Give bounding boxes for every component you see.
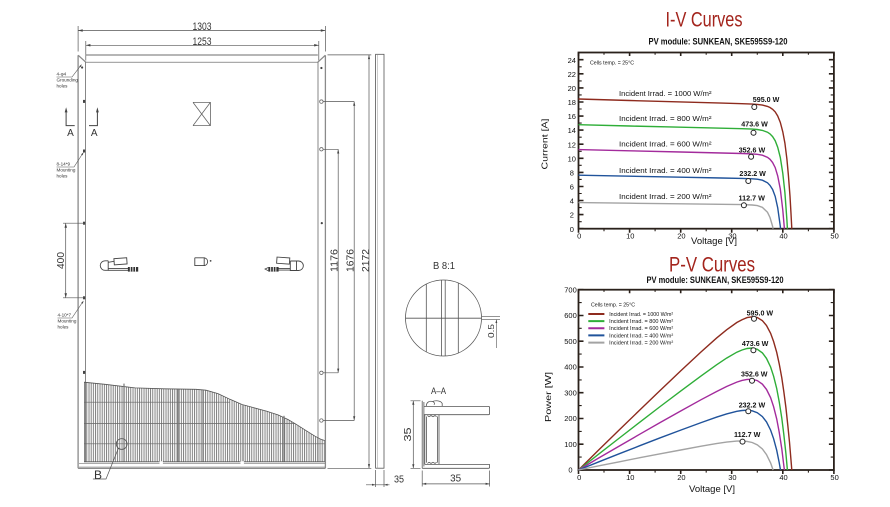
- svg-text:2172: 2172: [361, 249, 372, 272]
- svg-text:0: 0: [570, 225, 574, 234]
- svg-text:22: 22: [568, 70, 576, 79]
- svg-text:50: 50: [830, 232, 838, 241]
- svg-text:Incident Irrad. = 200 W/m²: Incident Irrad. = 200 W/m²: [609, 341, 673, 347]
- svg-text:40: 40: [779, 473, 787, 482]
- svg-text:1303: 1303: [193, 21, 212, 33]
- svg-text:40: 40: [779, 232, 787, 241]
- svg-text:10: 10: [626, 232, 634, 241]
- svg-text:8-14*9: 8-14*9: [57, 162, 71, 167]
- svg-text:30: 30: [728, 473, 736, 482]
- svg-text:500: 500: [564, 337, 577, 346]
- svg-text:Voltage [V]: Voltage [V]: [689, 484, 735, 495]
- svg-text:6: 6: [570, 183, 574, 192]
- svg-text:Cells temp. = 25°C: Cells temp. = 25°C: [590, 61, 634, 67]
- svg-text:Mounting: Mounting: [57, 168, 76, 173]
- svg-text:35: 35: [403, 427, 414, 442]
- svg-text:20: 20: [568, 84, 576, 93]
- svg-text:Incident Irrad. = 400 W/m²: Incident Irrad. = 400 W/m²: [609, 333, 673, 339]
- svg-text:112.7 W: 112.7 W: [739, 193, 766, 202]
- svg-text:400: 400: [564, 363, 577, 372]
- svg-text:232.2 W: 232.2 W: [739, 169, 766, 178]
- svg-text:0: 0: [568, 466, 572, 475]
- svg-text:B 8:1: B 8:1: [433, 261, 455, 272]
- svg-text:4: 4: [570, 197, 574, 206]
- svg-text:Incident Irrad. = 600 W/m²: Incident Irrad. = 600 W/m²: [609, 326, 673, 332]
- svg-text:400: 400: [56, 252, 67, 269]
- svg-text:24: 24: [568, 56, 576, 65]
- svg-text:A: A: [67, 128, 74, 139]
- svg-text:Incident Irrad. = 400 W/m²: Incident Irrad. = 400 W/m²: [619, 166, 712, 175]
- svg-text:Incident Irrad. = 1000 W/m²: Incident Irrad. = 1000 W/m²: [619, 89, 712, 98]
- svg-text:50: 50: [830, 473, 838, 482]
- svg-text:A–A: A–A: [431, 386, 447, 397]
- svg-text:Incident Irrad. = 200 W/m²: Incident Irrad. = 200 W/m²: [619, 192, 712, 201]
- svg-text:P-V Curves: P-V Curves: [669, 254, 755, 277]
- svg-text:600: 600: [564, 311, 577, 320]
- svg-text:20: 20: [677, 473, 685, 482]
- svg-text:Incident Irrad. = 600 W/m²: Incident Irrad. = 600 W/m²: [619, 140, 712, 149]
- svg-text:0: 0: [577, 232, 581, 241]
- svg-text:Mounting: Mounting: [58, 319, 77, 324]
- svg-text:0.5: 0.5: [487, 323, 496, 338]
- svg-text:700: 700: [564, 285, 577, 294]
- svg-text:232.2 W: 232.2 W: [739, 401, 766, 410]
- svg-text:35: 35: [450, 473, 461, 485]
- svg-text:12: 12: [568, 140, 576, 149]
- svg-text:I-V Curves: I-V Curves: [666, 9, 743, 32]
- svg-text:10: 10: [568, 154, 576, 163]
- svg-text:Incident Irrad. = 800 W/m²: Incident Irrad. = 800 W/m²: [609, 319, 673, 325]
- svg-text:4-φ4: 4-φ4: [57, 72, 67, 77]
- svg-text:8: 8: [570, 169, 574, 178]
- svg-text:10: 10: [626, 473, 634, 482]
- svg-text:0: 0: [577, 473, 581, 482]
- svg-text:1253: 1253: [193, 36, 212, 48]
- svg-text:PV module: SUNKEAN, SKE595S9-1: PV module: SUNKEAN, SKE595S9-120: [647, 275, 784, 286]
- svg-text:Grounding: Grounding: [57, 78, 79, 83]
- svg-text:4-10*7: 4-10*7: [58, 313, 72, 318]
- svg-text:Power [W]: Power [W]: [543, 372, 553, 422]
- svg-text:holes: holes: [58, 325, 70, 330]
- svg-text:A: A: [91, 128, 98, 139]
- svg-text:200: 200: [564, 414, 577, 423]
- svg-text:20: 20: [677, 232, 685, 241]
- svg-text:16: 16: [568, 112, 576, 121]
- svg-text:473.6 W: 473.6 W: [741, 119, 768, 128]
- svg-text:14: 14: [568, 126, 576, 135]
- svg-text:35: 35: [394, 475, 404, 486]
- svg-text:352.6 W: 352.6 W: [739, 145, 766, 154]
- svg-text:595.0 W: 595.0 W: [747, 308, 774, 317]
- svg-text:100: 100: [564, 440, 577, 449]
- svg-text:595.0 W: 595.0 W: [753, 95, 780, 104]
- svg-text:holes: holes: [57, 84, 69, 89]
- svg-text:18: 18: [568, 98, 576, 107]
- svg-text:Voltage [V]: Voltage [V]: [691, 236, 737, 247]
- svg-text:352.6 W: 352.6 W: [741, 370, 768, 379]
- svg-text:Cells temp. = 25°C: Cells temp. = 25°C: [591, 303, 635, 309]
- svg-text:300: 300: [564, 388, 577, 397]
- svg-text:2: 2: [570, 211, 574, 220]
- svg-text:473.6 W: 473.6 W: [742, 339, 769, 348]
- svg-text:112.7 W: 112.7 W: [734, 430, 761, 439]
- svg-text:Incident Irrad. = 1000 W/m²: Incident Irrad. = 1000 W/m²: [609, 312, 673, 318]
- svg-text:1676: 1676: [345, 249, 356, 272]
- svg-text:B: B: [94, 468, 102, 482]
- svg-text:1176: 1176: [329, 249, 340, 272]
- svg-text:Current [A]: Current [A]: [540, 119, 550, 170]
- svg-text:holes: holes: [57, 174, 69, 179]
- svg-text:PV module: SUNKEAN, SKE595S9-1: PV module: SUNKEAN, SKE595S9-120: [649, 37, 788, 48]
- svg-text:Incident Irrad. = 800 W/m²: Incident Irrad. = 800 W/m²: [619, 114, 712, 123]
